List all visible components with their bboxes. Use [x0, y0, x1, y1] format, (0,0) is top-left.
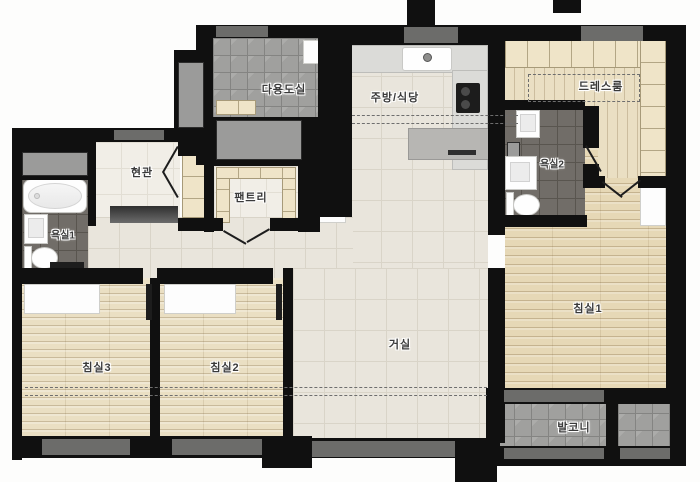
bath1-basin-bowl-icon [28, 218, 44, 238]
wall [583, 106, 599, 148]
bedroom2-closet [164, 284, 236, 314]
window [504, 390, 604, 402]
window [404, 27, 458, 43]
room-label-entrance: 현관 [131, 164, 153, 180]
wall [407, 0, 435, 27]
room-label-kitchen: 주방/식당 [371, 89, 420, 105]
room-label-dressroom: 드레스룸 [579, 78, 623, 94]
room-label-utility: 다용도실 [262, 81, 306, 97]
duct-shaft [178, 62, 204, 128]
kitchen-faucet-icon [423, 53, 432, 62]
wall [283, 268, 293, 442]
cooktop-burner-icon [461, 87, 470, 96]
bath2-basin-bowl-icon [520, 114, 536, 132]
wardrobe-right [640, 40, 666, 190]
bedroom1-closet [640, 186, 666, 226]
wall [486, 388, 500, 460]
wall [12, 128, 22, 268]
doormat [110, 206, 178, 223]
bedroom2-door [276, 284, 282, 320]
window [581, 26, 643, 41]
bath2-toilet [513, 194, 540, 216]
room-label-bath2: 욕실2 [540, 156, 564, 171]
wall [12, 268, 143, 284]
kitchen-island [408, 128, 490, 160]
bathtub-drain-icon [34, 193, 40, 199]
room-label-bedroom2: 침실2 [210, 359, 239, 375]
dressroom-corridor-floor [598, 100, 640, 178]
living-floor [293, 268, 489, 442]
wall [318, 37, 352, 217]
room-label-bath1: 욕실1 [51, 227, 75, 242]
pantry-shelf-top [216, 167, 296, 179]
wall [638, 176, 668, 188]
wall [270, 218, 320, 231]
floorplan: 다용도실 주방/식당 드레스룸 현관 팬트리 욕실1 욕실2 침실3 침실2 거… [0, 0, 700, 482]
window [216, 26, 268, 37]
bath2-shelf [507, 142, 520, 157]
window [504, 448, 604, 459]
wall [553, 0, 581, 13]
dashed-line [352, 123, 518, 124]
window [620, 448, 670, 459]
wall [22, 128, 88, 154]
bedroom3-closet [24, 284, 100, 314]
room-label-balcony: 발코니 [557, 419, 590, 435]
window [114, 130, 164, 140]
refrigerator-cabinet [216, 120, 302, 160]
dashed-line [352, 115, 518, 116]
wall [262, 436, 312, 468]
room-label-bedroom3: 침실3 [82, 359, 111, 375]
utility-counter [216, 100, 256, 115]
wall [178, 218, 223, 231]
bath2-vanity-bowl-icon [510, 162, 530, 182]
room-label-bedroom1: 침실1 [573, 300, 602, 316]
wall [488, 37, 505, 235]
dashed-line [25, 387, 487, 388]
room-label-pantry: 팬트리 [234, 189, 267, 205]
dashed-line [25, 395, 487, 396]
wall [12, 268, 22, 460]
wall [157, 268, 273, 284]
window [312, 441, 455, 457]
wall [88, 128, 96, 226]
wall [666, 30, 686, 392]
wall [670, 388, 686, 466]
wall [503, 215, 587, 227]
wall-niche [22, 152, 88, 176]
cooktop-burner-icon [461, 100, 470, 109]
island-handle-icon [448, 150, 476, 155]
window [172, 439, 262, 455]
window [42, 439, 130, 455]
wall [606, 390, 618, 448]
room-label-living: 거실 [389, 336, 411, 352]
bedroom3-door [146, 284, 152, 320]
